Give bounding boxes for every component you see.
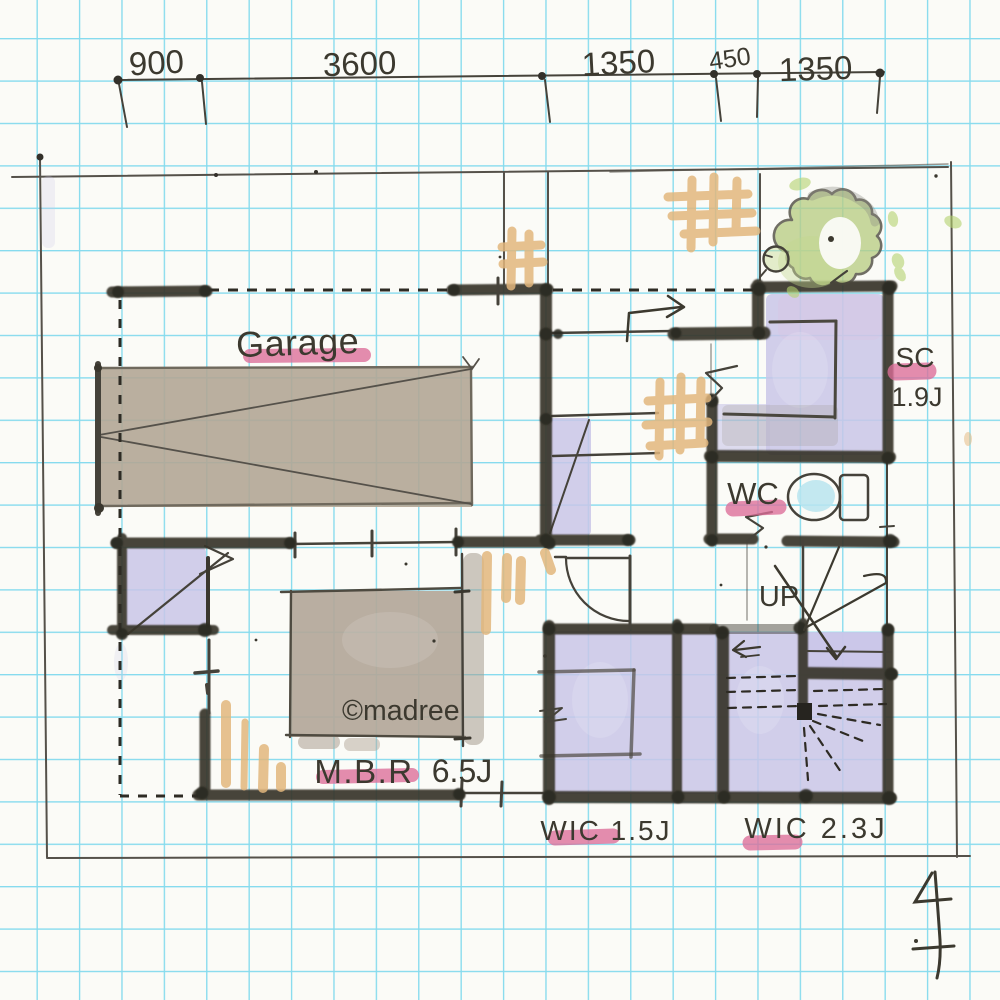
svg-text:WIC 1.5J: WIC 1.5J [540,815,671,846]
svg-text:450: 450 [707,42,752,76]
svg-text:900: 900 [128,43,185,83]
svg-text:M.B.R: M.B.R [314,753,413,790]
svg-text:6.5J: 6.5J [432,753,492,789]
svg-text:SC: SC [896,342,935,373]
svg-text:Garage: Garage [235,320,359,365]
svg-text:1.9J: 1.9J [891,382,942,412]
svg-text:1350: 1350 [581,42,656,83]
svg-text:©madree: ©madree [342,695,460,727]
svg-text:UP: UP [759,581,799,613]
svg-text:1350: 1350 [778,49,853,89]
svg-text:3600: 3600 [322,44,397,84]
svg-text:WIC 2.3J: WIC 2.3J [744,813,887,845]
svg-text:WC: WC [727,476,779,511]
